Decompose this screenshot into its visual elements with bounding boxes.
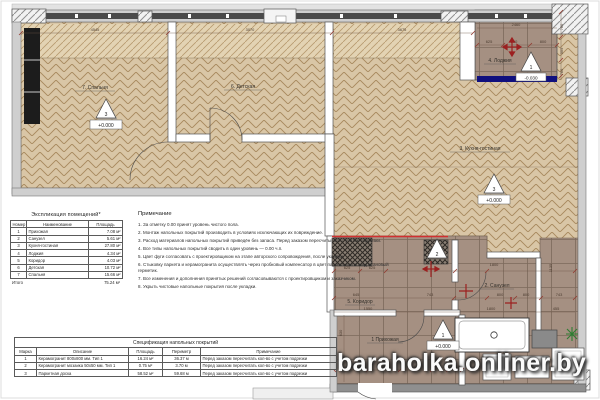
room-label-kids: 6. Детская [231,84,255,90]
svg-text:760: 760 [559,68,564,75]
svg-text:800: 800 [540,39,547,44]
col-number: Номер [11,221,27,228]
svg-text:800: 800 [523,292,530,297]
note-item: 3. Расход материалов напольных покрытий … [138,238,400,245]
table-row: 4Лоджия4.34 м² [11,250,123,257]
svg-text:645: 645 [353,292,360,297]
explication-table: Экспликация помещений* Номер Наименовани… [10,212,122,286]
svg-text:2: 2 [436,252,439,258]
svg-text:800: 800 [497,292,504,297]
table-row: 3Паркетная доска 58.52 м²59.68 м Перед з… [15,370,337,377]
col-name: Наименование [27,221,89,228]
svg-text:1135: 1135 [548,264,553,272]
table-row: 2Санузел5.61 м² [11,235,123,242]
svg-text:743: 743 [427,292,434,297]
room-label-bath: 2. Санузел [484,283,509,289]
spec-title: Спецификация напольных покрытий [15,338,337,348]
total-value: 75.24 м² [104,280,120,285]
svg-text:305: 305 [559,48,564,55]
note-item: 2. Монтаж напольных покрытий производить… [138,230,400,237]
note-item: 5. Цвет фуги согласовать с проектировщик… [138,254,400,261]
svg-text:3: 3 [493,187,496,193]
total-label: Итого [12,280,23,285]
svg-text:743: 743 [556,292,563,297]
spec-table: Спецификация напольных покрытий Марка Оп… [14,337,336,377]
svg-text:625: 625 [486,39,493,44]
note-item: 8. Укрыть чистовые напольные покрытия по… [138,284,400,291]
table-row: 7Спальня15.66 м² [11,271,123,278]
floor-plan-sheet: 4545 3070 3675 2460 625 800 800 760 305 … [0,0,600,400]
table-row: 3Кухня-гостиная27.80 м² [11,242,123,249]
room-label-entry: 1 Прихожая [371,337,399,343]
spec-title-row: Спецификация напольных покрытий [15,338,337,348]
table-row: 1Керамогранит 800х800 мм. Тип 1 16.24 м²… [15,355,337,362]
note-item: 4. Все типы напольных покрытий сводить в… [138,246,400,253]
svg-text:4545: 4545 [91,27,100,32]
svg-text:1800: 1800 [487,306,496,311]
svg-text:3675: 3675 [398,27,407,32]
windows [46,13,552,19]
svg-text:2460: 2460 [512,22,521,27]
svg-text:+0.000: +0.000 [98,123,114,129]
room-label-balcony: 4. Лоджия [488,58,512,64]
plant-icon [566,327,578,341]
wardrobe [24,28,40,124]
svg-text:+0.000: +0.000 [486,198,502,204]
room-label-corridor: 5. Коридор [347,299,373,305]
table-row: 2Керамогранит мозаика 50х50 мм. Тип 1 0.… [15,362,337,369]
washer-unit [532,330,557,348]
svg-text:1800: 1800 [490,262,499,267]
explication-header-row: Номер Наименование Площадь [11,221,123,228]
svg-text:3: 3 [105,112,108,118]
svg-text:1550: 1550 [364,306,373,311]
bathtub [455,318,529,352]
svg-text:630: 630 [338,329,343,336]
explication-title: Экспликация помещений* [10,212,122,218]
svg-text:760: 760 [559,23,564,30]
room-label-bedroom: 7. Спальня [82,85,108,91]
note-item: 6. Стыковку паркета и керамогранита осущ… [138,262,400,276]
svg-text:1: 1 [442,333,445,339]
watermark: baraholka.onliner.by [337,349,586,378]
spec-header-row: Марка Описание Площадь Периметр Примечан… [15,348,337,355]
svg-text:1: 1 [530,65,533,71]
notes-block: Примечание 1. За отметку 0.00 принят уро… [138,211,400,292]
note-item: 7. Все изменения и дополнения принятых р… [138,276,400,283]
col-area: Площадь [89,221,123,228]
tub-drain [491,332,497,338]
svg-text:3070: 3070 [246,27,255,32]
svg-text:-0.030: -0.030 [524,76,537,81]
svg-text:455: 455 [553,306,560,311]
table-row: 1Прихожая7.08 м² [11,228,123,235]
explication-total-row: Итого 75.24 м² [10,279,122,286]
table-row: 5Коридор4.03 м² [11,257,123,264]
room-label-living: 3. Кухня-гостиная [460,146,501,152]
table-row: 6Детская10.72 м² [11,264,123,271]
note-item: 1. За отметку 0.00 принят уровень чистог… [138,222,400,229]
notes-title: Примечание [138,211,400,217]
